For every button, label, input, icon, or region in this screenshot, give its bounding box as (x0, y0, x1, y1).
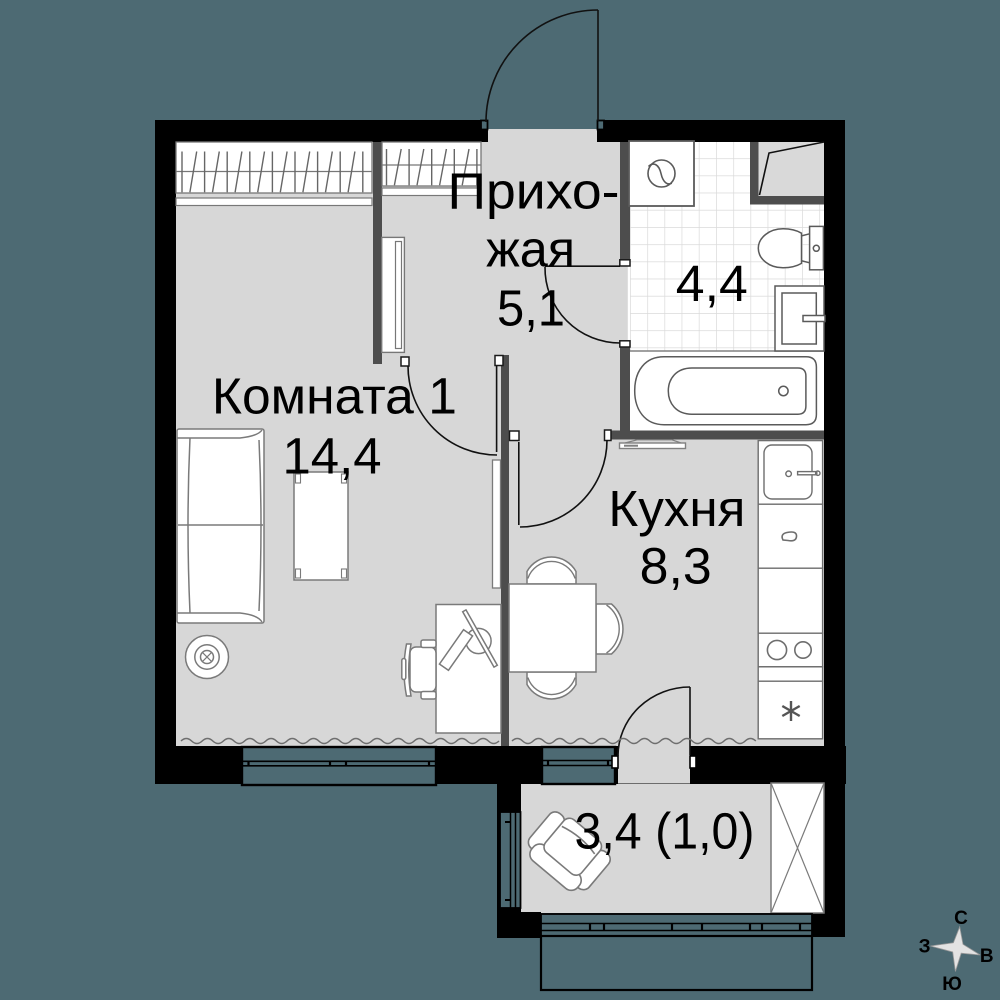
svg-text:З: З (919, 937, 931, 958)
svg-text:5,1: 5,1 (497, 279, 565, 336)
svg-text:Ю: Ю (942, 974, 962, 995)
svg-text:В: В (980, 946, 994, 967)
svg-text:Кухня: Кухня (608, 480, 745, 537)
svg-text:С: С (954, 908, 968, 929)
svg-text:Комната 1: Комната 1 (212, 368, 457, 425)
svg-text:14,4: 14,4 (283, 427, 382, 484)
svg-text:4,4: 4,4 (676, 255, 748, 312)
svg-text:Прихо-: Прихо- (448, 163, 620, 220)
svg-text:8,3: 8,3 (640, 538, 712, 595)
svg-text:жая: жая (486, 221, 575, 278)
svg-text:3,4 (1,0): 3,4 (1,0) (575, 803, 755, 860)
